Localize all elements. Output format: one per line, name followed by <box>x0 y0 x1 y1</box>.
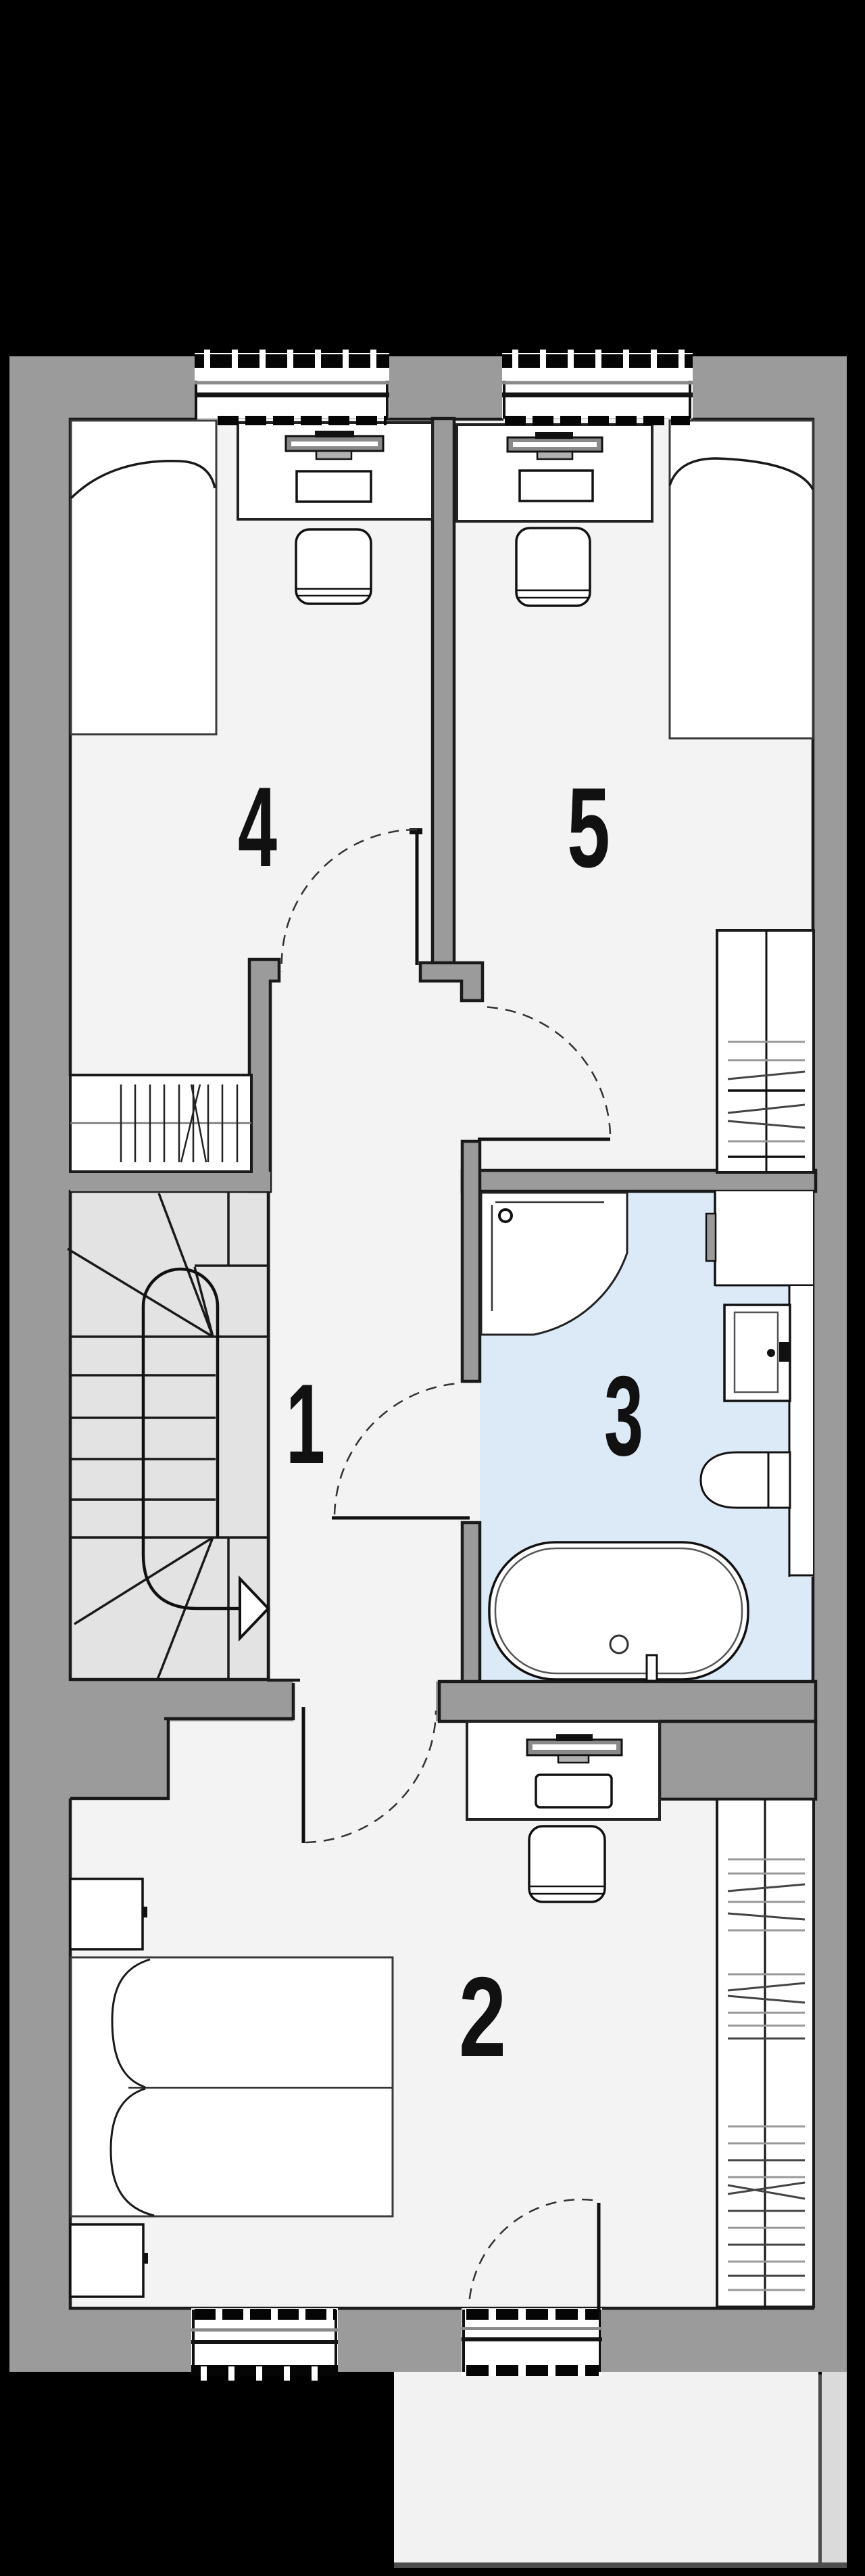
svg-text:4: 4 <box>238 763 277 890</box>
svg-text:5: 5 <box>567 765 610 891</box>
svg-text:1: 1 <box>286 1360 325 1487</box>
svg-text:3: 3 <box>604 1352 643 1479</box>
svg-text:2: 2 <box>459 1955 506 2081</box>
